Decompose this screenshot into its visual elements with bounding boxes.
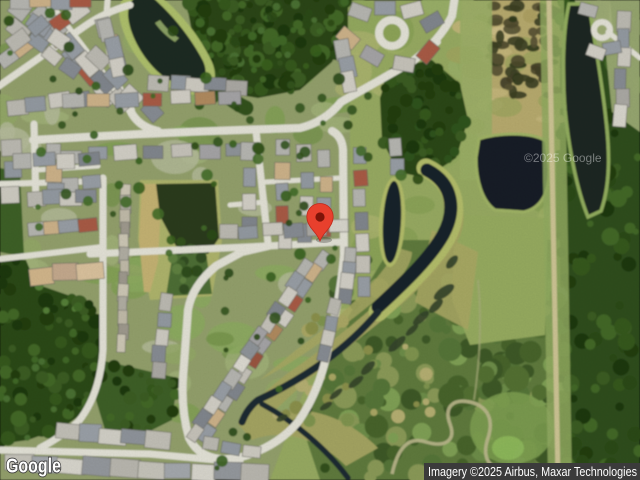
svg-text:Google: Google xyxy=(6,456,61,478)
svg-text:Imagery ©2025 Airbus, Maxar Te: Imagery ©2025 Airbus, Maxar Technologies xyxy=(428,464,637,479)
svg-text:©2025 Google: ©2025 Google xyxy=(524,151,602,165)
